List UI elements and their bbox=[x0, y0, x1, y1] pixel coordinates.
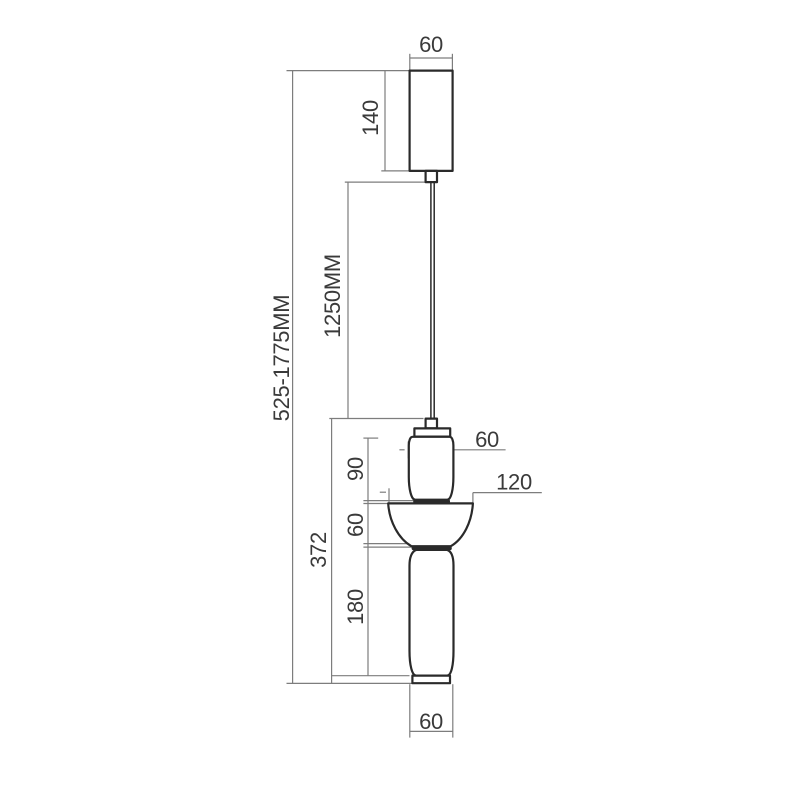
lower-body-height-label: 180 bbox=[343, 589, 368, 625]
diffuser-rim bbox=[412, 676, 450, 684]
pendant-lamp-outline bbox=[388, 71, 473, 684]
body-top-cap bbox=[414, 428, 450, 436]
fixture-height-label: 372 bbox=[306, 532, 331, 568]
shade-height-label: 60 bbox=[343, 513, 368, 537]
dimension-labels: 60 140 1250MM 525-1775MM 372 90 60 180 6… bbox=[269, 32, 532, 734]
pendant-lamp-dimension-drawing: 60 140 1250MM 525-1775MM 372 90 60 180 6… bbox=[0, 0, 800, 800]
ceiling-canopy bbox=[410, 71, 453, 171]
dimension-drawing-canvas: 60 140 1250MM 525-1775MM 372 90 60 180 6… bbox=[0, 0, 800, 800]
upper-body-width-label: 60 bbox=[475, 427, 499, 452]
shade-width-label: 120 bbox=[496, 470, 532, 495]
cable-length-label: 1250MM bbox=[320, 254, 345, 338]
upper-body bbox=[409, 437, 454, 500]
canopy-height-label: 140 bbox=[358, 100, 383, 136]
upper-body-height-label: 90 bbox=[343, 457, 368, 481]
shade-bowl bbox=[388, 503, 473, 546]
overall-height-label: 525-1775MM bbox=[269, 295, 294, 422]
canopy-width-label: 60 bbox=[419, 32, 443, 57]
canopy-cable-connector bbox=[426, 171, 437, 182]
base-width-label: 60 bbox=[419, 709, 443, 734]
suspension-cable bbox=[431, 182, 434, 419]
body-cable-connector bbox=[426, 419, 437, 429]
lower-body bbox=[410, 550, 454, 676]
